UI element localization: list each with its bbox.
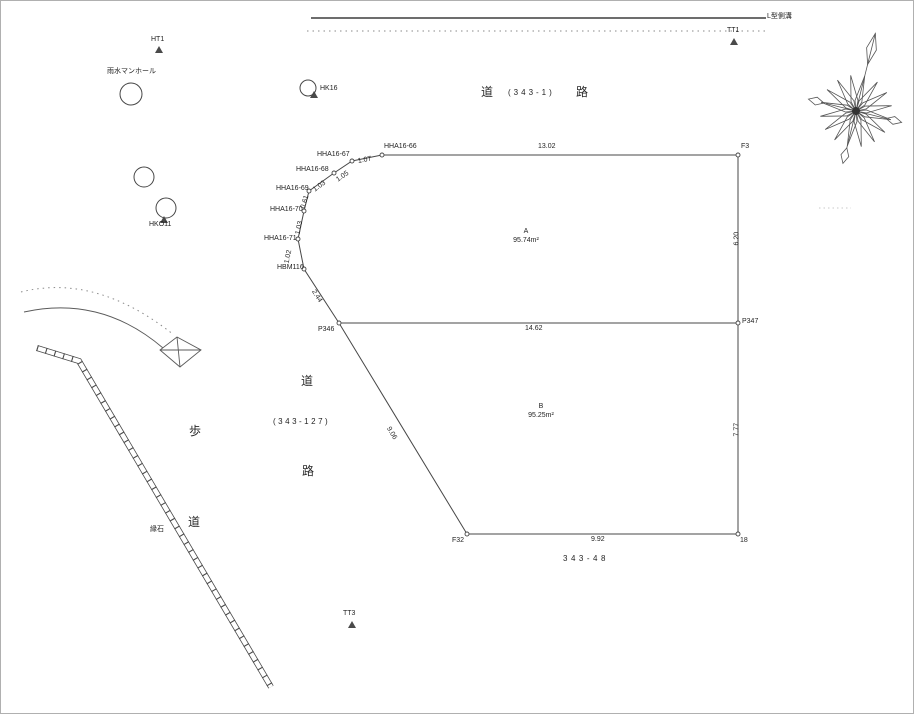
side-road-number: (343-127) [273, 418, 330, 426]
point-marker-18 [736, 532, 740, 536]
parcel-a-name: A [491, 228, 561, 235]
point-label-hbm116: HBM116 [277, 264, 304, 271]
point-marker-hha16-67 [350, 159, 354, 163]
utility-circle-2 [156, 198, 176, 218]
point-marker-p346 [337, 321, 341, 325]
triangle-markers [155, 38, 738, 628]
hk16-circle [300, 80, 316, 96]
triangle-marker-ht1 [155, 46, 163, 53]
survey-point-markers [296, 153, 740, 536]
utility-circles [120, 80, 316, 218]
point-label-f3: F3 [741, 143, 749, 150]
point-label-hha16-69: HHA16-69 [276, 185, 309, 192]
compass-south-tip [839, 147, 851, 164]
compass-east-tip [885, 115, 902, 127]
triangle-marker-tt3 [348, 621, 356, 628]
dim-bottom-9-92: 9.92 [591, 536, 605, 543]
manhole-label: 雨水マンホール [107, 68, 156, 75]
lot-number-343-48: 343-48 [563, 555, 609, 563]
point-label-hko11: HKO11 [149, 221, 171, 228]
dim-top-13-02: 13.02 [538, 143, 556, 150]
point-label-hha16-66: HHA16-66 [384, 143, 417, 150]
point-marker-hha16-66 [380, 153, 384, 157]
sidewalk-kanji-ho: 歩 [189, 425, 201, 437]
manhole-circle [120, 83, 142, 105]
gutter-label: L型側溝 [767, 13, 792, 20]
dim-right-6-20: 6.20 [734, 232, 741, 246]
guide-arc-solid [24, 308, 163, 348]
utility-circle-1 [134, 167, 154, 187]
road-main-kanji-2: 路 [576, 86, 588, 98]
road-main-number: (343-1) [508, 89, 555, 97]
dim-middle-14-62: 14.62 [525, 325, 543, 332]
curb-inner [37, 348, 271, 687]
point-marker-p347 [736, 321, 740, 325]
guide-arc-dotted [21, 288, 174, 335]
triangle-marker-tt1 [730, 38, 738, 45]
parcel-b-name: B [506, 403, 576, 410]
point-label-hha16-71: HHA16-71 [264, 235, 297, 242]
compass-west-tip [807, 95, 824, 107]
point-label-hk16: HK16 [320, 85, 338, 92]
point-label-tt3: TT3 [343, 610, 355, 617]
arrow-head-icon [160, 337, 201, 367]
point-label-p347: P347 [742, 318, 758, 325]
side-road-kanji-1: 道 [301, 375, 313, 387]
curb-ladder-line [37, 348, 271, 687]
point-label-ht1: HT1 [151, 36, 164, 43]
compass-north-arrow [856, 33, 875, 111]
dim-right-7-77: 7.77 [734, 423, 741, 437]
point-label-tt1: TT1 [727, 27, 739, 34]
point-label-hha16-68: HHA16-68 [296, 166, 329, 173]
arrow-head-outline [160, 337, 201, 367]
compass-center [851, 106, 861, 116]
triangle-marker-hk16 [310, 91, 318, 98]
curb-label: 縁石 [150, 526, 164, 533]
point-label-f32: F32 [452, 537, 464, 544]
sidewalk-kanji-do: 道 [188, 516, 200, 528]
arrow-head-diagonal-1 [177, 337, 180, 367]
parcel-a-area: 95.74m² [491, 237, 561, 244]
side-road-kanji-2: 路 [302, 465, 314, 477]
survey-geometry [1, 1, 914, 714]
road-main-kanji-1: 道 [481, 86, 493, 98]
point-label-p346: P346 [318, 326, 334, 333]
point-label-hha16-70: HHA16-70 [270, 206, 303, 213]
survey-drawing: L型側溝 TT1 HT1 雨水マンホール HK16 HKO11 道 (343-1… [0, 0, 914, 714]
point-label-18: 18 [740, 537, 748, 544]
point-marker-f32 [465, 532, 469, 536]
point-marker-hha16-68 [332, 171, 336, 175]
parcel-boundary-outline [298, 155, 738, 534]
parcel-b-area: 95.25m² [506, 412, 576, 419]
curb-outer [37, 348, 271, 687]
point-marker-f3 [736, 153, 740, 157]
compass-rose-icon [795, 22, 914, 175]
point-label-hha16-67: HHA16-67 [317, 151, 350, 158]
curb-ticks [37, 348, 271, 687]
